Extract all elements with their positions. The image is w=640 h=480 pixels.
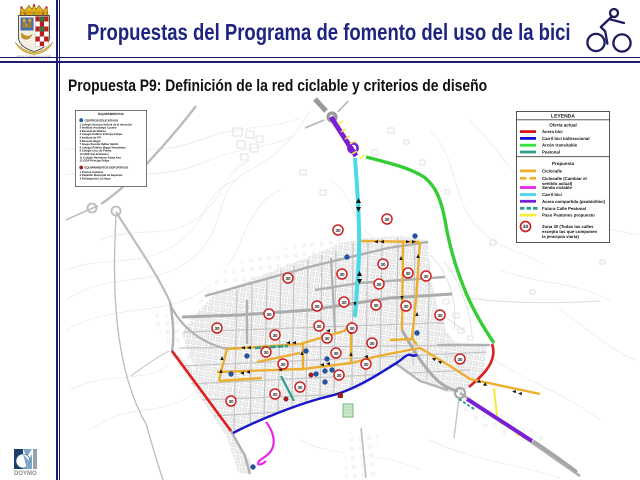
svg-text:30: 30	[349, 326, 355, 331]
svg-text:EQUIPAMIENTOS: EQUIPAMIENTOS	[98, 112, 124, 116]
svg-text:30: 30	[384, 217, 390, 222]
svg-text:30: 30	[266, 312, 272, 317]
svg-text:CENTROS EDUCATIVOS: CENTROS EDUCATIVOS	[85, 118, 119, 122]
svg-text:30: 30	[324, 336, 330, 341]
svg-text:Ciclocalle: Ciclocalle	[542, 168, 563, 173]
svg-text:Acera compartida (peatón/bici): Acera compartida (peatón/bici)	[542, 199, 606, 204]
svg-text:Peatonal: Peatonal	[542, 150, 560, 155]
svg-text:30: 30	[335, 228, 341, 233]
svg-text:30: 30	[380, 262, 386, 267]
svg-text:30: 30	[423, 274, 429, 279]
svg-text:30: 30	[339, 272, 345, 277]
svg-text:30: 30	[336, 373, 342, 378]
svg-text:la jerarquía viaria): la jerarquía viaria)	[542, 234, 579, 239]
svg-text:30: 30	[405, 271, 411, 276]
svg-text:30: 30	[285, 276, 291, 281]
svg-text:30: 30	[263, 350, 269, 355]
svg-text:EQUIPAMIENTOS DEPORTIVOS: EQUIPAMIENTOS DEPORTIVOS	[85, 166, 129, 170]
svg-text:30: 30	[437, 313, 443, 318]
svg-text:Propuesta: Propuesta	[552, 161, 575, 166]
svg-text:DOYMO: DOYMO	[14, 471, 37, 476]
svg-text:3 Polideportivo La Hoya: 3 Polideportivo La Hoya	[80, 177, 111, 180]
svg-text:Senda ciclable: Senda ciclable	[542, 185, 572, 190]
svg-text:30: 30	[369, 341, 375, 346]
svg-text:30: 30	[363, 362, 369, 367]
svg-text:LEYENDA: LEYENDA	[551, 113, 575, 119]
svg-text:30: 30	[214, 326, 220, 331]
svg-text:Arcén transitable: Arcén transitable	[542, 143, 578, 148]
svg-text:30: 30	[403, 304, 409, 309]
svg-text:30: 30	[457, 357, 463, 362]
svg-text:Oferta actual: Oferta actual	[549, 122, 577, 127]
svg-text:30: 30	[523, 224, 529, 230]
svg-text:30: 30	[333, 351, 339, 356]
svg-text:Carril bici: Carril bici	[542, 192, 562, 197]
svg-text:30: 30	[316, 324, 322, 329]
svg-text:30: 30	[228, 399, 234, 404]
svg-text:30: 30	[373, 303, 379, 308]
svg-text:Paso Peatones propuesto: Paso Peatones propuesto	[542, 213, 595, 218]
svg-text:30: 30	[376, 282, 382, 287]
svg-text:12 CEIP Príncipe Felipe: 12 CEIP Príncipe Felipe	[80, 160, 110, 163]
svg-text:30: 30	[272, 333, 278, 338]
svg-text:30: 30	[272, 392, 278, 397]
svg-text:30: 30	[341, 300, 347, 305]
svg-text:Futura Calle Peatonal: Futura Calle Peatonal	[542, 206, 586, 211]
svg-text:30: 30	[314, 304, 320, 309]
svg-text:Carril bici bidireccional: Carril bici bidireccional	[542, 136, 590, 141]
svg-text:30: 30	[280, 362, 286, 367]
svg-text:30: 30	[297, 385, 303, 390]
svg-text:Acera bici: Acera bici	[542, 129, 563, 134]
